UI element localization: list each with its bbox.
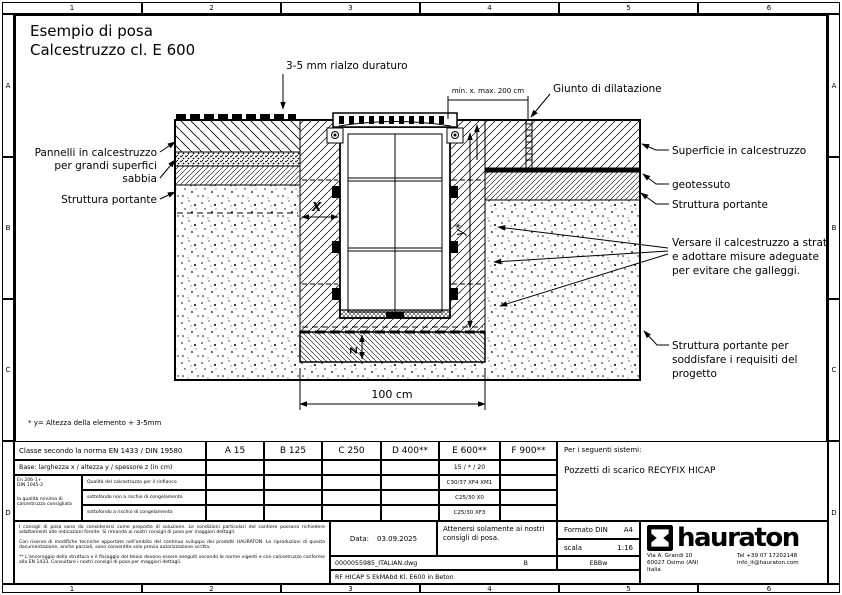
concrete-value-1: C30/37 XF4 XM1 [439,475,500,490]
cell-empty [500,475,557,490]
cell-empty [381,490,439,505]
format-cell: Formato DIN A4 [557,521,640,539]
ruler-bottom-4: 4 [420,584,559,593]
base-note-3: progetto [672,368,717,380]
revision: B [524,560,528,567]
cell-empty [500,505,557,521]
class-a15: A 15 [206,441,264,460]
brand-contact: Tel +39 07 17202148 info_it@hauraton.com [737,553,799,574]
panels-label-2: per grandi superfici [54,160,157,172]
class-d400: D 400** [381,441,439,460]
dim-x-label: X [311,200,322,214]
load-class-header: Classe secondo la norma EN 1433 / DIN 19… [14,441,206,460]
disclaimer-3: ** L'ancoraggio della struttura e il fis… [19,555,325,566]
disclaimer-2: Con riserva di modifiche tecniche apport… [19,540,325,551]
disclaimer-1: I consigli di posa sono da considerarsi … [19,525,325,536]
class-e600: E 600** [439,441,500,460]
pour-note-1: Versare il calcestruzzo a strati [672,237,830,249]
ruler-left-d: D [2,441,14,584]
concrete-row-label-1: Qualità del calcestruzzo per il rinfianc… [82,475,206,490]
class-b125: B 125 [264,441,322,460]
ruler-bottom-5: 5 [559,584,698,593]
file-name: 0000055985_ITALIAN.dwg [335,560,417,567]
cell-empty [322,505,381,521]
brand-name: hauraton [677,525,799,551]
ruler-bottom-2: 2 [142,584,281,593]
cell-empty [381,475,439,490]
base-dims-label: Base: larghezza x / altezza y / spessore… [14,460,206,475]
scale-label: scala [564,544,582,552]
class-f900: F 900** [500,441,557,460]
brand-email: info_it@hauraton.com [737,560,799,567]
brand-addr-3: Italia [647,567,737,574]
installation-cross-section: X y* Z 100 cm min. x. max. 200 cm 3-5 mm… [0,0,842,441]
base-dims-e600: 15 / * / 20 [439,460,500,475]
cell-empty [322,460,381,475]
standards-line-2: DIN 1045-2 [17,483,79,488]
base-note-2: soddisfare i requisiti del [672,354,797,366]
brand-addr-1: Via A. Grandi 10 [647,553,737,560]
disclaimer-block: I consigli di posa sono da considerarsi … [14,521,330,584]
cell-empty [322,475,381,490]
cell-empty [264,460,322,475]
concrete-row-label-2: sottofondo non a rischio di congelamento [82,490,206,505]
panels-label-1: Pannelli in calcestruzzo [35,147,157,159]
systems-value: Pozzetti di scarico RECYFIX HICAP [564,466,821,476]
note-cell: Attenersi solamente ai nostri consigli d… [437,521,557,556]
date-value: 03.09.2025 [377,535,417,543]
format-label: Formato DIN [564,526,608,534]
sand-label: sabbia [122,173,157,185]
cell-empty [322,490,381,505]
standards-cell: En 206-1+ DIN 1045-2 la qualità minima d… [14,475,82,521]
right-labels: Superficie in calcestruzzo geotessuto St… [672,145,830,380]
quality-note-2: calcestruzzo consigliata [17,502,79,507]
brand-address: Via A. Grandi 10 60027 Osimo (AN) Italia [647,553,737,574]
cell-empty [381,505,439,521]
class-c250: C 250 [322,441,381,460]
anchor-bracket-left [327,128,343,143]
cell-empty [500,460,557,475]
ruler-bottom-3: 3 [281,584,420,593]
systems-block: Per i seguenti sistemi: Pozzetti di scar… [557,441,828,521]
cell-empty [264,475,322,490]
cell-empty [381,460,439,475]
surface-label: Superficie in calcestruzzo [672,145,806,157]
left-labels: Pannelli in calcestruzzo per grandi supe… [35,147,157,206]
cell-empty [206,490,264,505]
code-cell: EBBw [557,556,640,570]
cell-empty [206,460,264,475]
format-value: A4 [624,526,633,534]
anchor-bracket-right [447,128,463,143]
concrete-value-2: C25/30 X0 [439,490,500,505]
footnote: * y= Altezza della elemento + 3-5mm [28,419,161,427]
drawing-sheet: 1 2 3 4 5 6 1 2 3 4 5 6 A B C D A B C D … [0,0,842,595]
geotextile-label: geotessuto [672,179,730,191]
chamber-body [332,127,458,318]
brand-addr-2: 60027 Osimo (AN) [647,560,737,567]
file-cell: 0000055985_ITALIAN.dwg B [330,556,557,570]
dim-minmax-label: min. x. max. 200 cm [452,87,524,95]
scale-cell: scala 1:16 [557,539,640,556]
brand-tel: Tel +39 07 17202148 [737,553,799,560]
ruler-right-d: D [828,441,840,584]
scale-value: 1:16 [617,544,633,552]
cell-empty [264,505,322,521]
dim-y-label: y* [453,223,467,237]
doc-title-cell: RF HICAP S EkMAbd Kl. E600 in Beton [330,570,640,584]
cell-empty [264,490,322,505]
dim-100cm-label: 100 cm [371,388,412,401]
dim-z-label: Z [349,347,360,354]
ruler-bottom-6: 6 [698,584,840,593]
date-label: Data: [350,535,369,543]
pour-note-2: e adottare misure adeguate [672,251,819,263]
hauraton-logo-icon [647,525,673,551]
brand-block: hauraton Via A. Grandi 10 60027 Osimo (A… [640,521,828,584]
pour-note-3: per evitare che galleggi. [672,265,800,277]
portante-right-label: Struttura portante [672,199,768,211]
concrete-row-label-3: sottofondo a rischio di congelamento [82,505,206,521]
portante-left-label: Struttura portante [61,194,157,206]
cell-empty [206,505,264,521]
date-cell: Data: 03.09.2025 [330,521,437,556]
base-note-1: Struttura portante per [672,340,789,352]
riser-label: 3-5 mm rialzo duraturo [286,60,408,72]
cell-empty [500,490,557,505]
ruler-bottom-1: 1 [2,584,142,593]
cell-empty [206,475,264,490]
giunto-label: Giunto di dilatazione [553,83,662,95]
concrete-value-3: C25/30 XF3 [439,505,500,521]
systems-label: Per i seguenti sistemi: [564,446,821,454]
